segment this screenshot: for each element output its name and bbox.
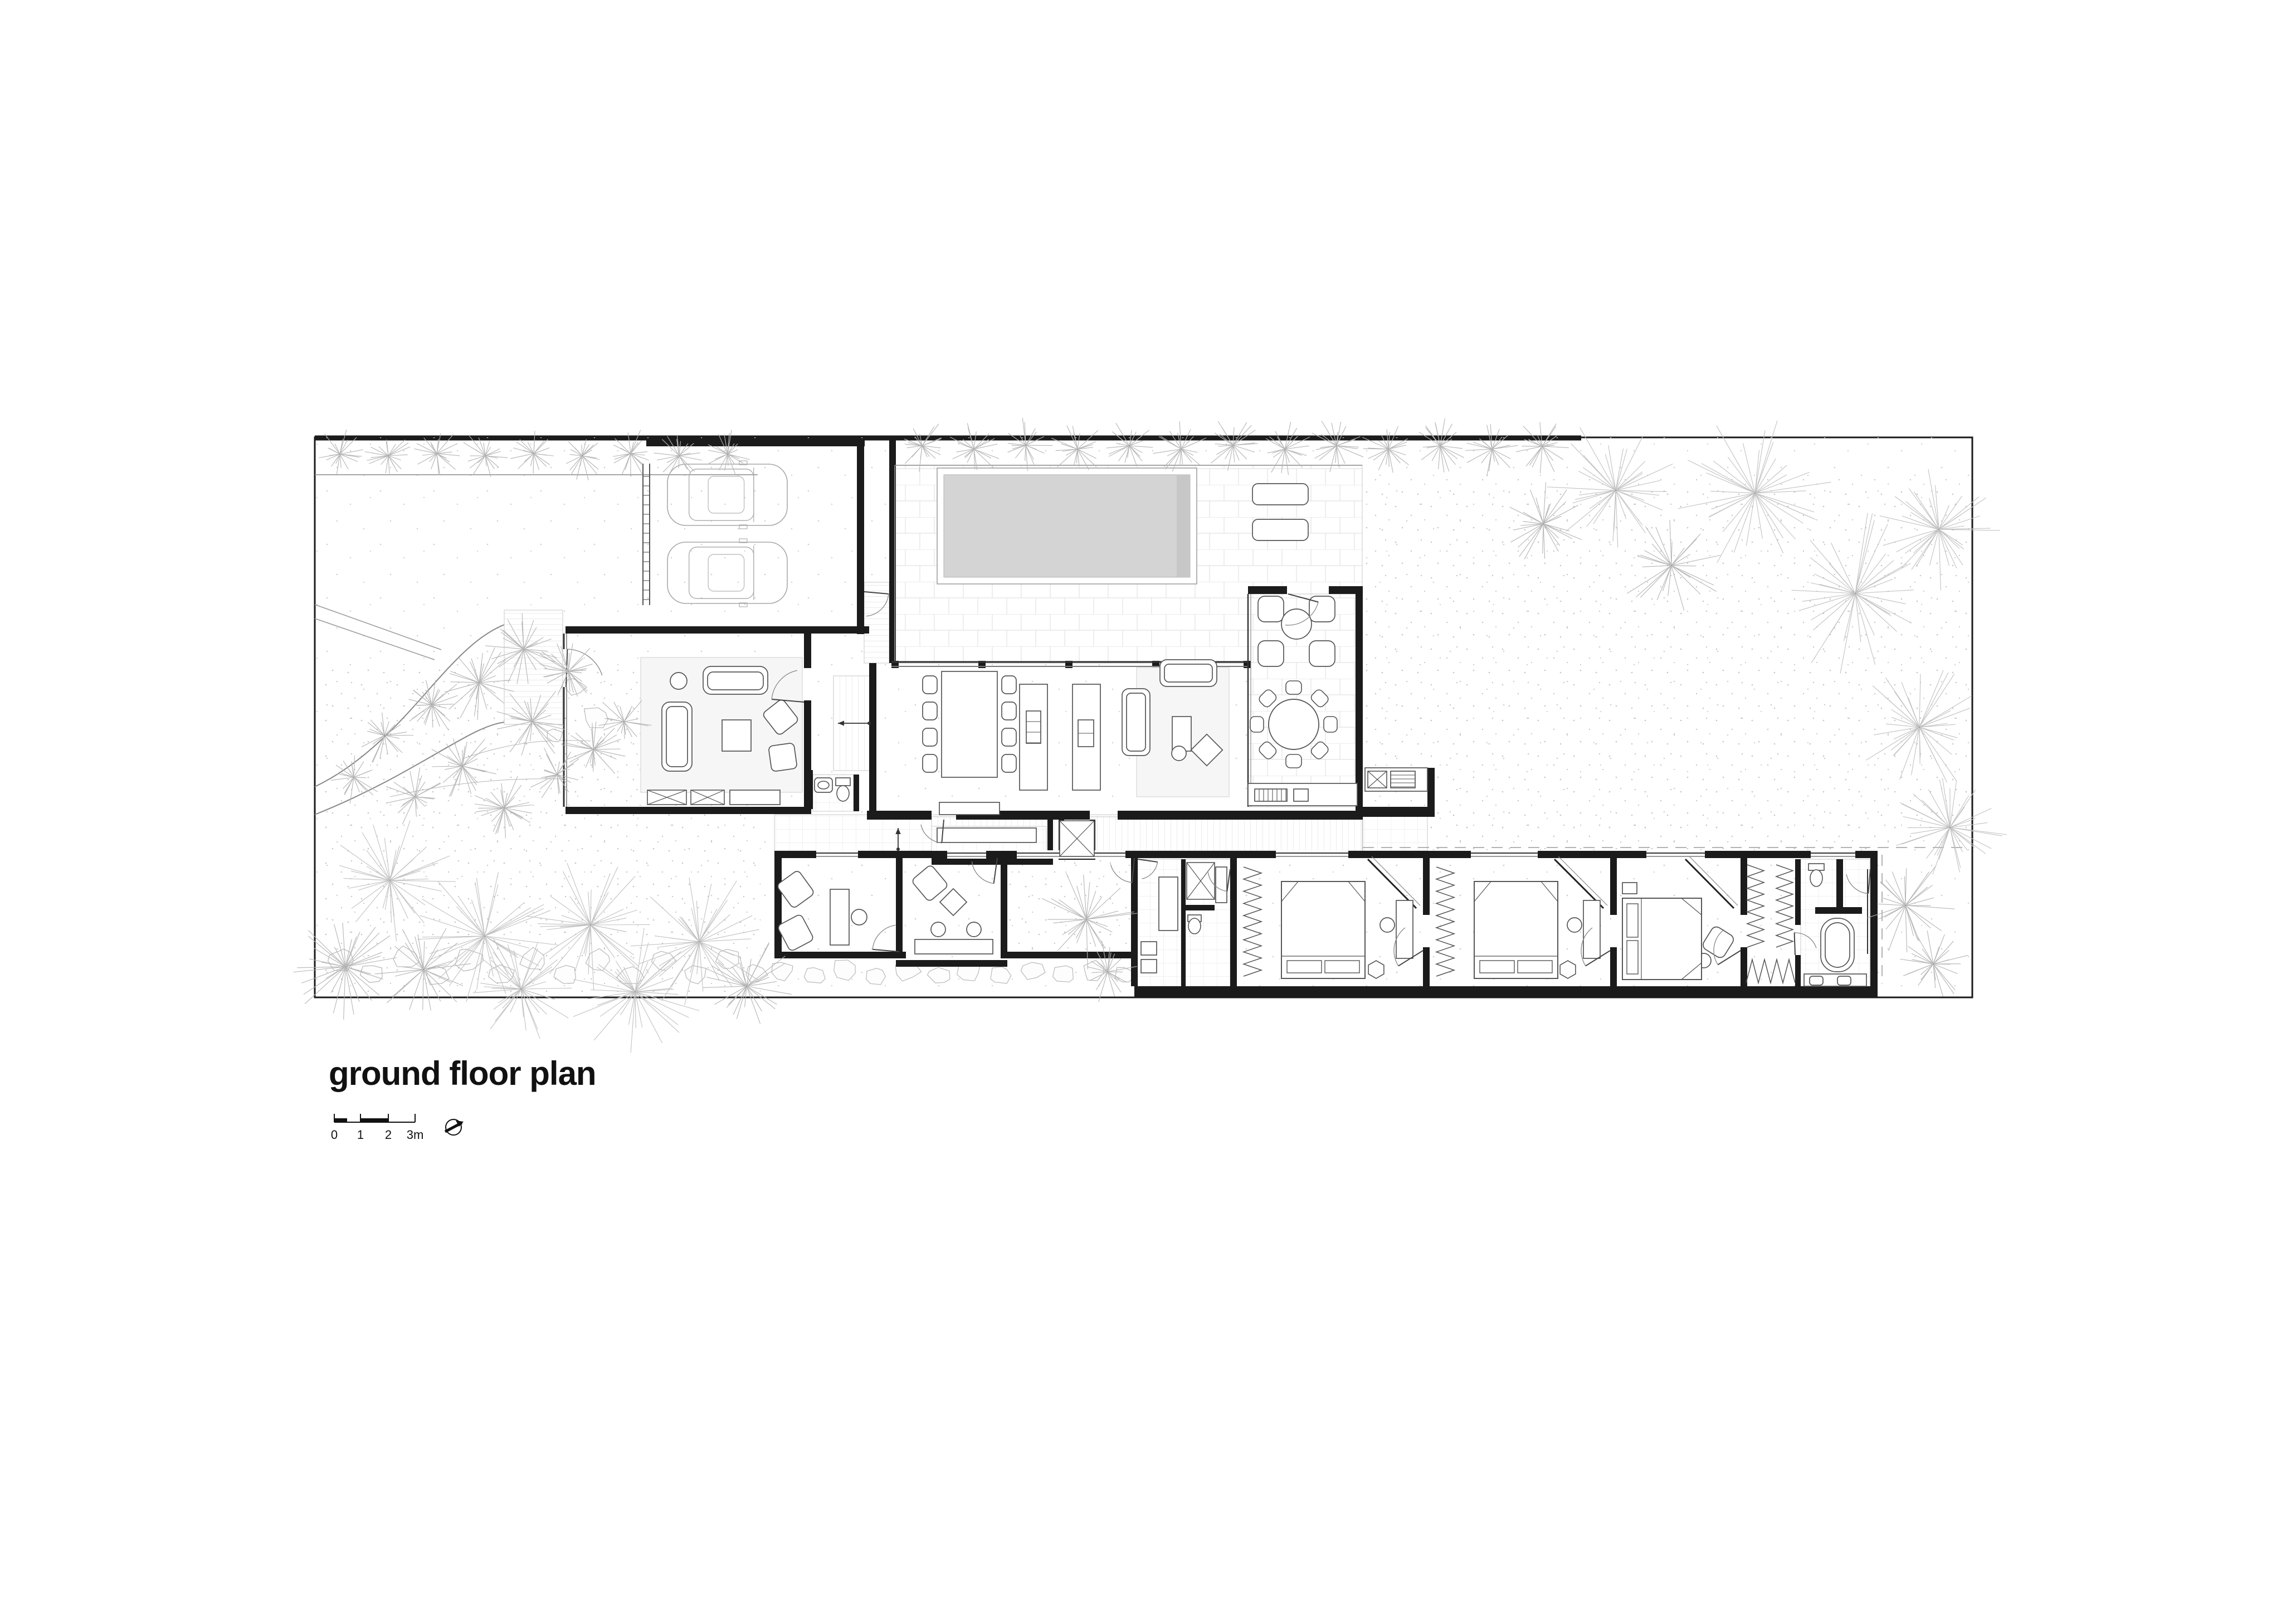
cabinet [730, 790, 780, 805]
drawing-title: ground floor plan [329, 1054, 596, 1093]
desk [1583, 900, 1600, 958]
appliance [1141, 942, 1157, 955]
outdoor-chair [1309, 596, 1335, 622]
grill [1255, 789, 1287, 801]
desk-chair [1380, 918, 1395, 932]
nightstand [1622, 883, 1637, 894]
outdoor-chair [1309, 641, 1335, 666]
desk [830, 889, 849, 945]
desk [1396, 900, 1413, 958]
dining-table [942, 671, 997, 777]
appliance [1141, 959, 1157, 973]
chair [923, 676, 937, 694]
side-table [1560, 961, 1576, 978]
desk [915, 939, 993, 954]
coffee-table [1172, 717, 1191, 751]
sun-lounger [1252, 519, 1308, 540]
toilet [1188, 918, 1201, 934]
sun-lounger [1252, 484, 1308, 505]
sheet: 0123m ground floor plan [0, 0, 2296, 1622]
outdoor-chair [1286, 681, 1301, 694]
round-dining-table [1269, 699, 1319, 749]
toilet-tank [836, 778, 850, 786]
vanity [1216, 867, 1227, 903]
cooktop [1026, 711, 1041, 743]
outdoor-chair [1286, 754, 1301, 768]
scale-label: 0 [331, 1128, 338, 1142]
chair [1002, 728, 1016, 746]
desk-chair [931, 922, 945, 937]
scale-bar: 0123m [331, 1114, 423, 1142]
desk-chair [967, 922, 981, 937]
appliance [1391, 771, 1415, 788]
chair [923, 702, 937, 720]
chair [923, 728, 937, 746]
side-table [670, 673, 687, 689]
outdoor-chair [1250, 717, 1264, 732]
scale-label: 1 [357, 1128, 364, 1142]
chair [1002, 754, 1016, 772]
sideboard [939, 802, 1000, 815]
pantry-bench [937, 828, 1036, 842]
chair [1002, 676, 1016, 694]
outdoor-chair [1324, 717, 1337, 732]
outdoor-chair [1258, 641, 1284, 666]
desk-chair [851, 909, 867, 925]
toilet [1810, 870, 1822, 887]
basin-bowl [818, 781, 829, 789]
outdoor-chair [1258, 596, 1284, 622]
north-arrow-icon [445, 1119, 464, 1135]
scale-label: 2 [385, 1128, 392, 1142]
scale-label: 3m [407, 1128, 424, 1142]
chair [923, 754, 937, 772]
side-table [1368, 961, 1384, 978]
coffee-table [722, 720, 751, 751]
pouf [1172, 746, 1186, 761]
basin [1837, 976, 1851, 985]
armchair [768, 743, 797, 772]
desk-chair [1567, 918, 1582, 932]
floor-plan: 0123m [0, 0, 2296, 1622]
chair [1002, 702, 1016, 720]
basin [1810, 976, 1823, 985]
pool [937, 468, 1197, 584]
toilet [837, 786, 849, 801]
cabinet [1159, 877, 1178, 931]
